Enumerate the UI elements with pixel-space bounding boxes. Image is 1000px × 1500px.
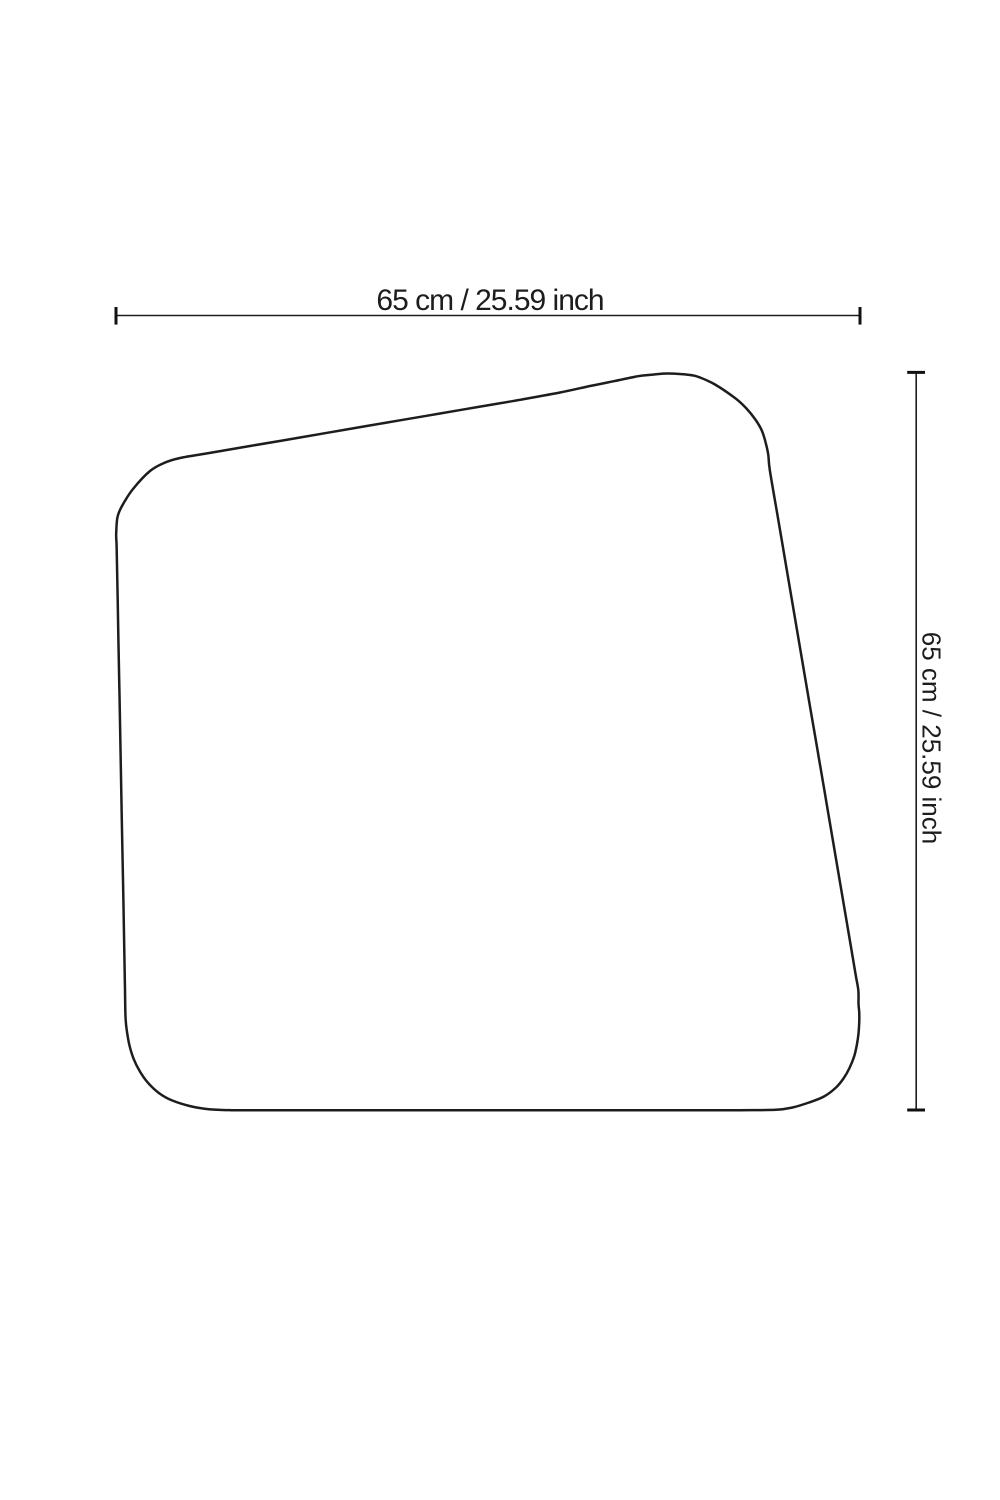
svg-text:65 cm / 25.59 inch: 65 cm / 25.59 inch: [376, 284, 603, 317]
svg-text:65 cm / 25.59 inch: 65 cm / 25.59 inch: [917, 632, 947, 844]
